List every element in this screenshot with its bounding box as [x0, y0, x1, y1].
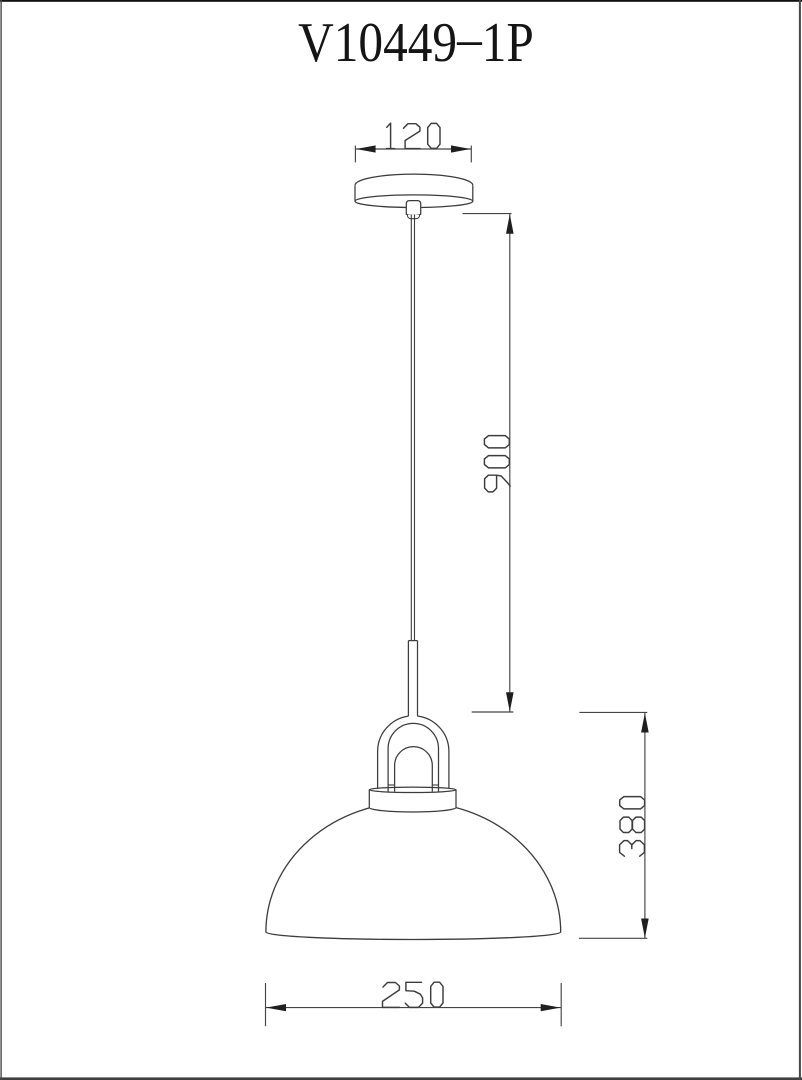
svg-text:V10449–1P: V10449–1P — [298, 8, 534, 74]
